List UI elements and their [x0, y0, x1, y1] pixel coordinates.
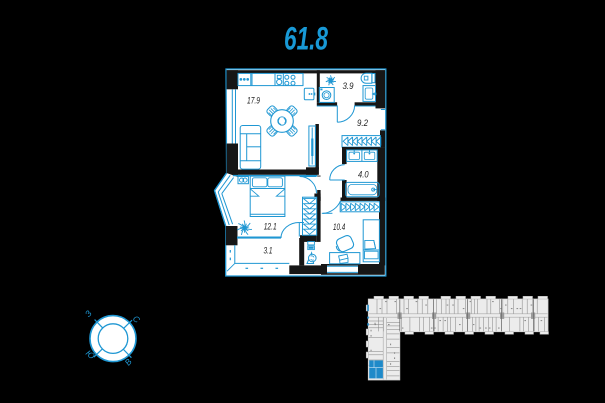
- svg-text:4.0: 4.0: [358, 170, 369, 181]
- svg-text:9.2: 9.2: [357, 118, 369, 129]
- svg-text:61.8: 61.8: [284, 21, 328, 57]
- svg-text:12.1: 12.1: [264, 221, 277, 232]
- svg-text:3.1: 3.1: [264, 246, 273, 257]
- svg-text:3.9: 3.9: [343, 81, 355, 92]
- svg-text:17.9: 17.9: [247, 95, 260, 106]
- svg-text:10.4: 10.4: [333, 222, 345, 233]
